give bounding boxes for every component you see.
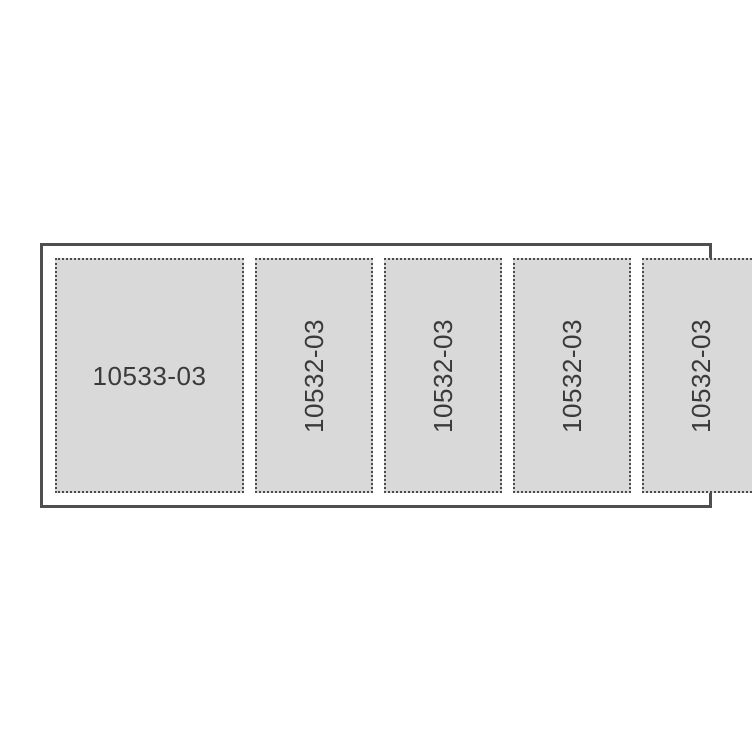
panel-label: 10532-03 (559, 319, 585, 433)
panel-10532-03-3: 10532-03 (513, 258, 631, 493)
panel-10533-03: 10533-03 (55, 258, 244, 493)
panel-10532-03-2: 10532-03 (384, 258, 502, 493)
panel-10532-03-1: 10532-03 (255, 258, 373, 493)
diagram-page: 10533-03 10532-03 10532-03 10532-03 1053… (0, 0, 752, 750)
panel-label: 10532-03 (301, 319, 327, 433)
outer-frame: 10533-03 10532-03 10532-03 10532-03 1053… (40, 243, 712, 508)
panel-label: 10533-03 (93, 363, 207, 389)
panel-label: 10532-03 (688, 319, 714, 433)
panel-10532-03-4: 10532-03 (642, 258, 752, 493)
panel-label: 10532-03 (430, 319, 456, 433)
